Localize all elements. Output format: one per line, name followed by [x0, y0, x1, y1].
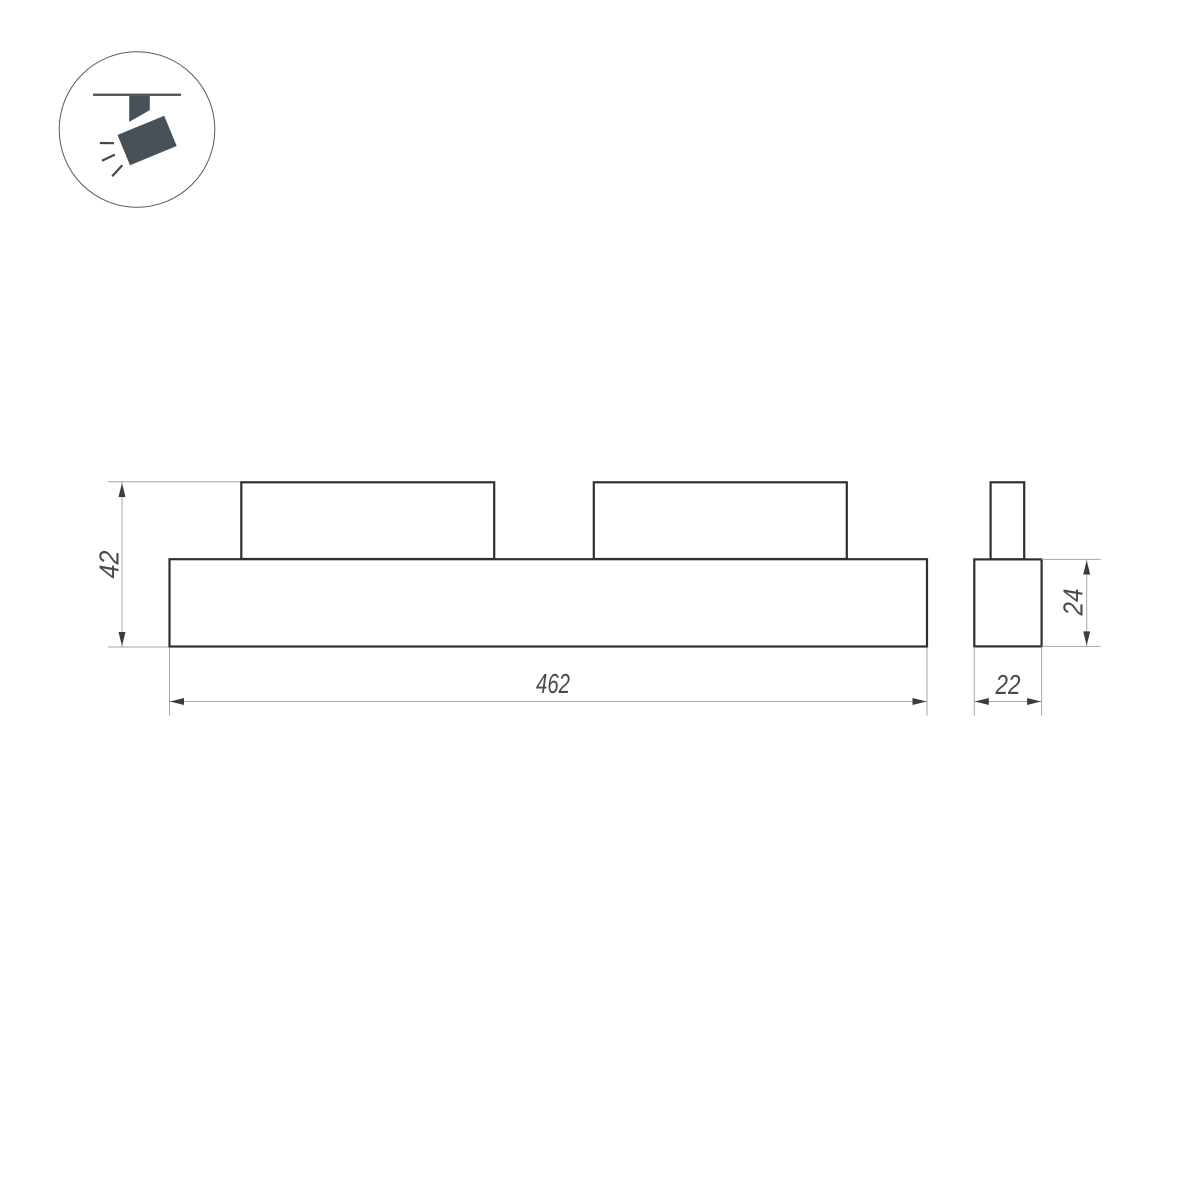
- svg-text:462: 462: [536, 668, 570, 699]
- svg-text:42: 42: [94, 550, 125, 578]
- svg-text:22: 22: [995, 669, 1021, 700]
- svg-text:24: 24: [1058, 589, 1089, 617]
